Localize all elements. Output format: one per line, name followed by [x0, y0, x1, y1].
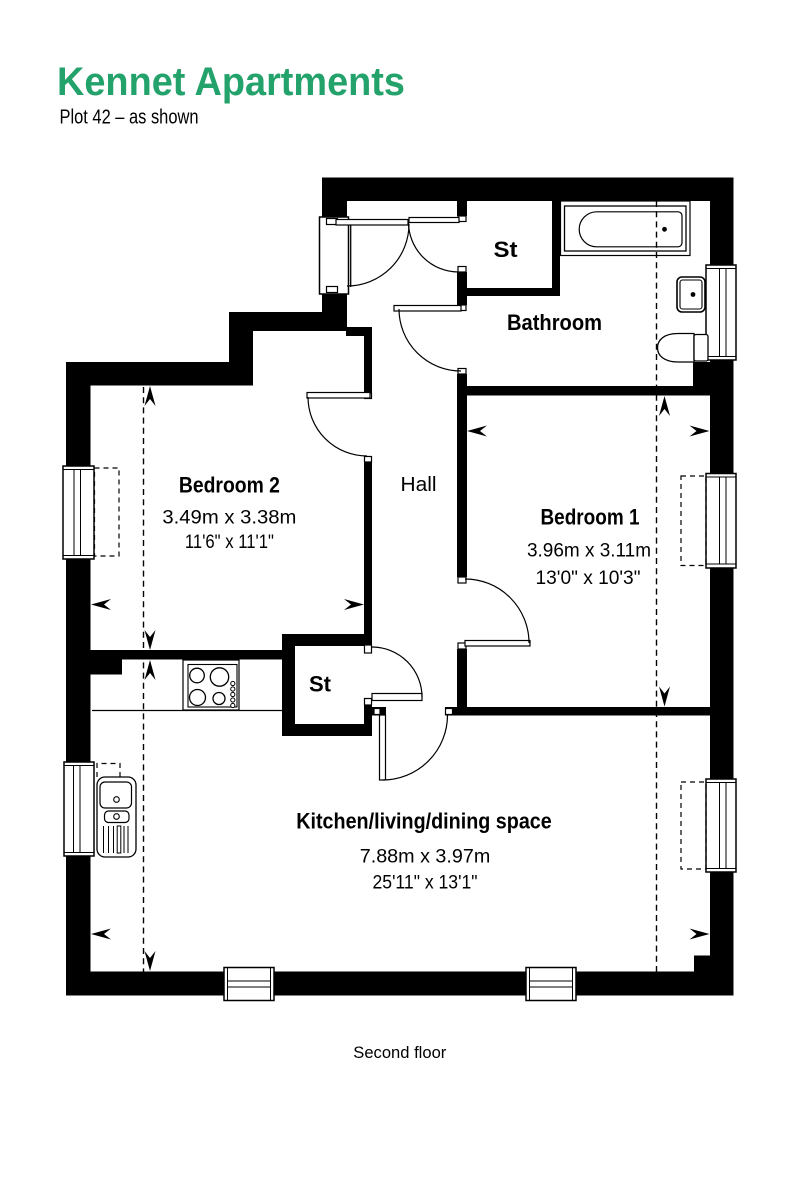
svg-text:Kitchen/living/dining space: Kitchen/living/dining space [296, 808, 552, 833]
svg-text:Bedroom 2: Bedroom 2 [179, 473, 280, 498]
svg-text:St: St [309, 672, 332, 697]
svg-text:13'0" x 10'3": 13'0" x 10'3" [536, 568, 641, 589]
svg-text:7.88m x 3.97m: 7.88m x 3.97m [360, 846, 491, 867]
svg-text:Plot 42 – as shown: Plot 42 – as shown [60, 107, 199, 129]
svg-text:3.96m x 3.11m: 3.96m x 3.11m [527, 541, 651, 562]
svg-text:Second floor: Second floor [353, 1043, 446, 1062]
svg-text:Bathroom: Bathroom [507, 310, 602, 335]
svg-text:3.49m x 3.38m: 3.49m x 3.38m [162, 507, 296, 528]
svg-text:St: St [494, 237, 519, 262]
svg-text:Bedroom 1: Bedroom 1 [541, 505, 640, 530]
svg-text:25'11" x 13'1": 25'11" x 13'1" [373, 872, 478, 893]
svg-text:Kennet Apartments: Kennet Apartments [57, 60, 405, 104]
svg-text:Hall: Hall [401, 474, 437, 496]
svg-text:11'6" x 11'1": 11'6" x 11'1" [185, 532, 274, 553]
